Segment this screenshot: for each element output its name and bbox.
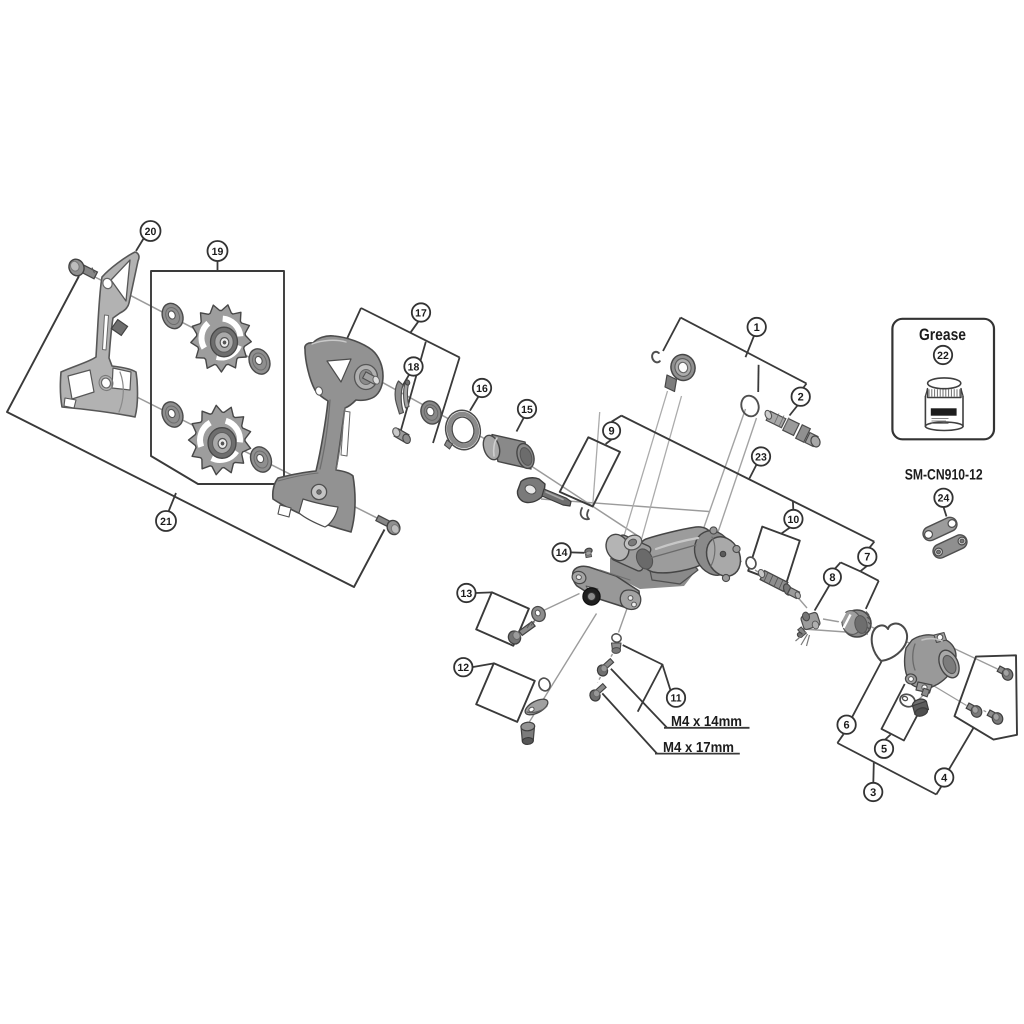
svg-text:18: 18 [408,361,420,373]
svg-text:Grease: Grease [919,326,966,344]
svg-text:15: 15 [521,404,533,416]
svg-text:23: 23 [755,451,767,463]
svg-text:16: 16 [476,383,488,395]
svg-text:1: 1 [754,322,760,334]
svg-text:9: 9 [609,426,615,438]
svg-text:4: 4 [941,772,948,784]
svg-text:10: 10 [788,514,800,526]
svg-text:7: 7 [864,552,870,564]
svg-text:24: 24 [938,493,950,505]
svg-text:M4 x 14mm: M4 x 14mm [671,714,742,730]
svg-text:19: 19 [212,246,224,258]
svg-text:M4 x 17mm: M4 x 17mm [663,740,734,756]
svg-text:3: 3 [870,787,876,799]
svg-text:8: 8 [829,572,835,584]
svg-text:6: 6 [844,720,850,732]
svg-text:21: 21 [160,516,172,528]
svg-text:11: 11 [670,693,681,705]
svg-text:22: 22 [937,350,949,362]
svg-text:12: 12 [457,662,469,674]
svg-text:2: 2 [798,392,804,404]
svg-text:20: 20 [145,226,157,238]
svg-text:5: 5 [881,744,887,756]
svg-text:14: 14 [556,547,568,559]
svg-text:13: 13 [461,588,473,600]
svg-text:SM-CN910-12: SM-CN910-12 [905,467,983,484]
svg-text:17: 17 [415,307,427,319]
